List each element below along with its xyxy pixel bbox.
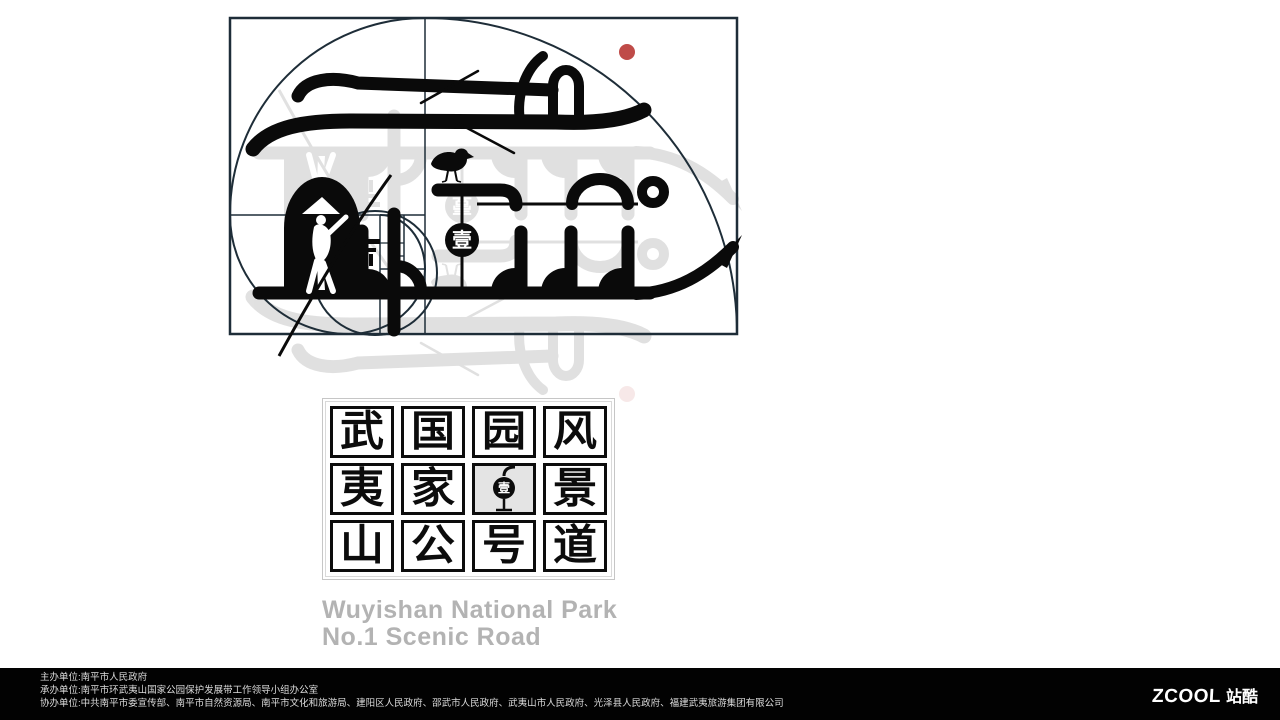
zcool-logo: ZCOOL 站酷 <box>1152 683 1258 708</box>
seal-cell: 家 <box>401 463 465 515</box>
credit-line-host: 主办单位:南平市人民政府 <box>40 671 784 684</box>
english-title: Wuyishan National Park No.1 Scenic Road <box>322 597 617 651</box>
credit-line-undertaker: 承办单位:南平市环武夷山国家公园保护发展带工作领导小组办公室 <box>40 684 784 697</box>
svg-text:壹: 壹 <box>498 480 510 495</box>
logo-construction-figure: 壹 <box>0 0 1280 668</box>
seal-lantern-cell: 壹 <box>472 463 536 515</box>
seal-frame: 武 夷 山 国 家 公 园 壹 <box>325 401 612 577</box>
seal-logotype: 武 夷 山 国 家 公 园 壹 <box>322 398 615 580</box>
seal-column-fengjingdao: 风 景 道 <box>543 406 607 572</box>
english-title-line2: No.1 Scenic Road <box>322 624 617 651</box>
seal-cell: 国 <box>401 406 465 458</box>
credits-footer: 主办单位:南平市人民政府 承办单位:南平市环武夷山国家公园保护发展带工作领导小组… <box>0 668 1280 720</box>
seal-column-yuanyihao: 园 壹 号 <box>472 406 536 572</box>
lantern-icon: 壹 <box>482 464 526 514</box>
english-title-line1: Wuyishan National Park <box>322 597 617 624</box>
organizer-credits: 主办单位:南平市人民政府 承办单位:南平市环武夷山国家公园保护发展带工作领导小组… <box>40 671 784 710</box>
design-poster: 壹 <box>0 0 1280 720</box>
zcool-cjk: 站酷 <box>1226 683 1258 707</box>
seal-cell: 夷 <box>330 463 394 515</box>
seal-column-wuyishan: 武 夷 山 <box>330 406 394 572</box>
seal-column-guojiagong: 国 家 公 <box>401 406 465 572</box>
seal-cell: 号 <box>472 520 536 572</box>
seal-cell: 园 <box>472 406 536 458</box>
seal-cell: 山 <box>330 520 394 572</box>
seal-cell: 景 <box>543 463 607 515</box>
seal-cell: 风 <box>543 406 607 458</box>
logo-artwork <box>253 44 742 356</box>
seal-cell: 道 <box>543 520 607 572</box>
seal-cell: 武 <box>330 406 394 458</box>
zcool-wordmark: ZCOOL <box>1151 686 1221 708</box>
seal-cell: 公 <box>401 520 465 572</box>
credit-line-coorganizers: 协办单位:中共南平市委宣传部、南平市自然资源局、南平市文化和旅游局、建阳区人民政… <box>40 697 784 710</box>
